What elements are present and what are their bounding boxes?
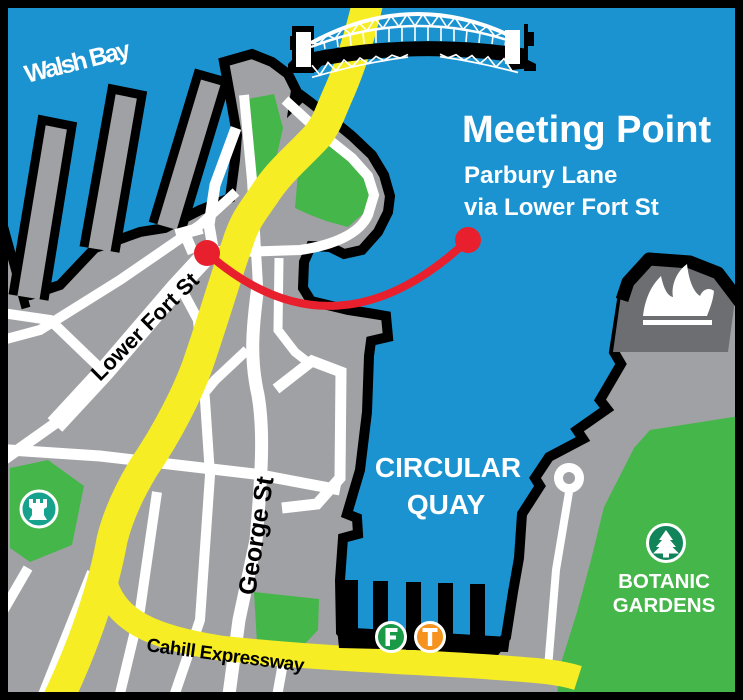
svg-text:BOTANIC: BOTANIC — [618, 570, 710, 593]
svg-text:CIRCULAR: CIRCULAR — [375, 452, 521, 483]
svg-text:QUAY: QUAY — [407, 489, 486, 520]
svg-text:Meeting Point: Meeting Point — [462, 109, 711, 151]
svg-text:Parbury Lane: Parbury Lane — [464, 162, 617, 189]
svg-text:GARDENS: GARDENS — [613, 594, 716, 617]
svg-text:via Lower Fort St: via Lower Fort St — [464, 194, 659, 221]
